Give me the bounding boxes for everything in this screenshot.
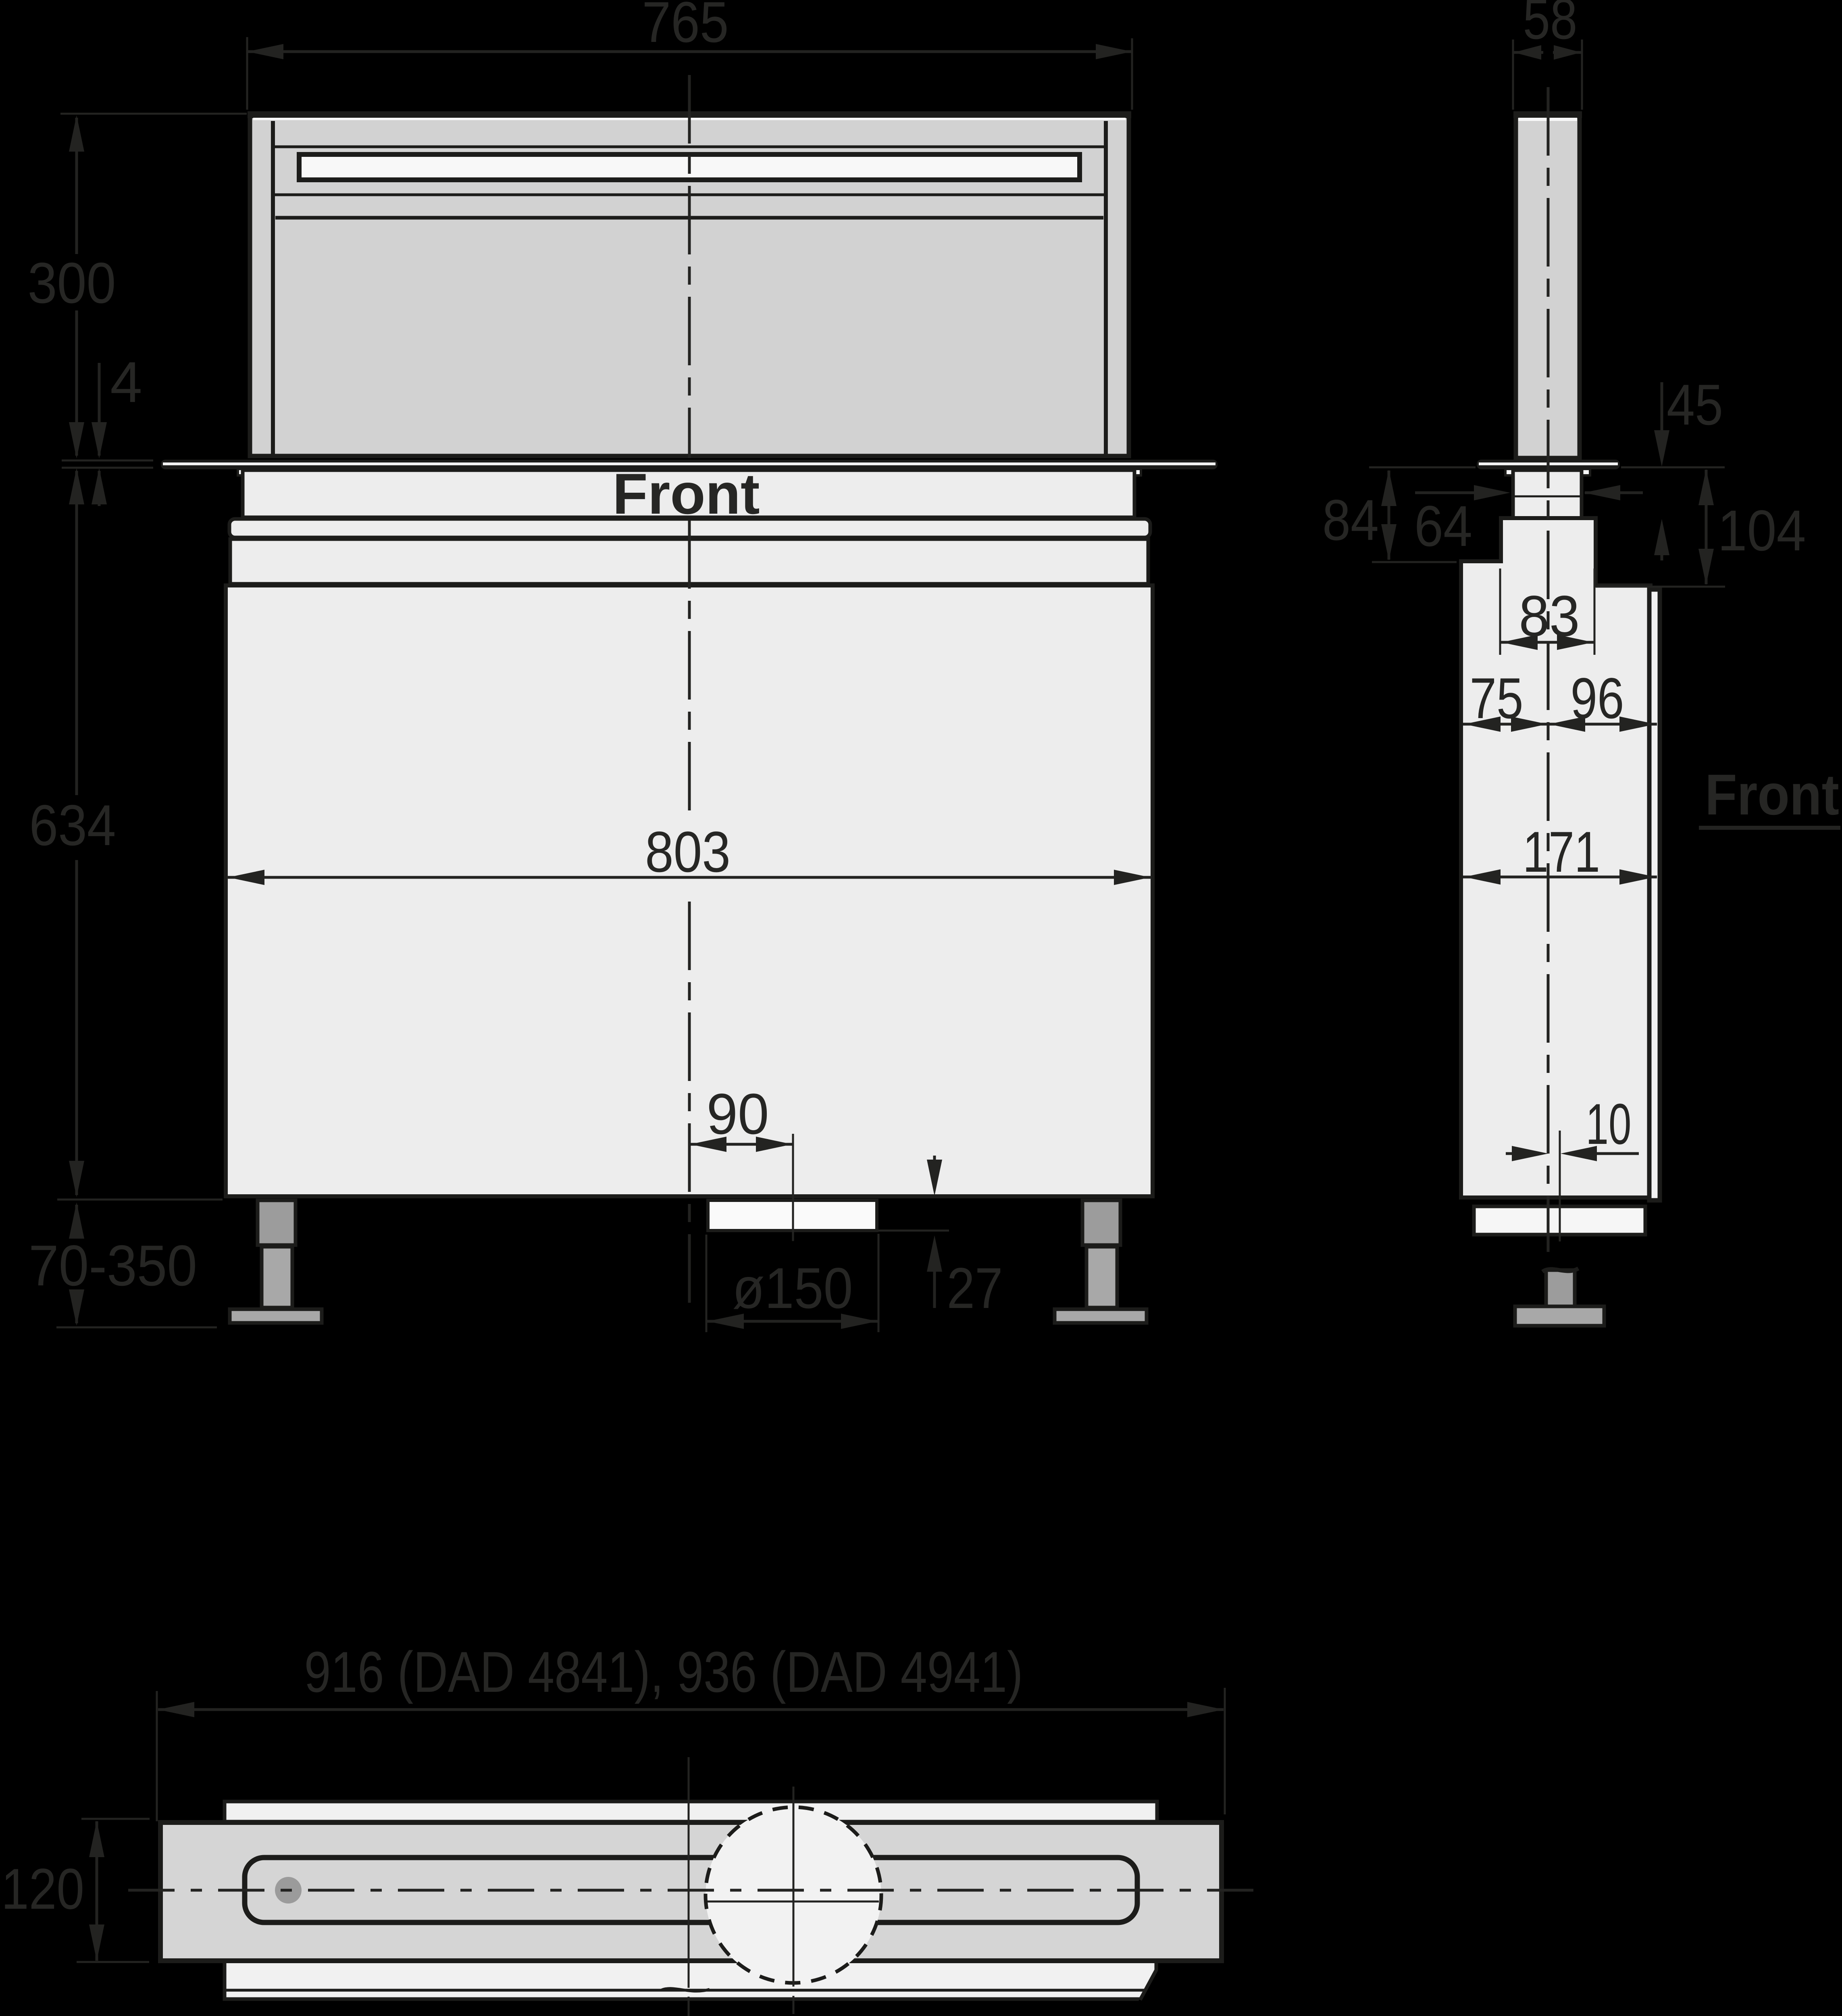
svg-text:70-350: 70-350 (29, 1234, 197, 1298)
svg-text:765: 765 (642, 0, 729, 54)
svg-text:300: 300 (28, 251, 116, 315)
svg-text:27: 27 (947, 1256, 1003, 1320)
svg-text:803: 803 (645, 820, 731, 884)
svg-text:64: 64 (1414, 494, 1472, 558)
svg-text:ø150: ø150 (733, 1256, 853, 1320)
svg-text:45: 45 (1667, 373, 1723, 437)
svg-text:Front: Front (1705, 763, 1839, 827)
svg-text:83: 83 (1519, 584, 1580, 648)
svg-text:90: 90 (707, 1082, 769, 1146)
svg-text:84: 84 (1322, 488, 1379, 552)
svg-text:96: 96 (1571, 666, 1624, 731)
svg-text:75: 75 (1470, 666, 1524, 731)
svg-text:58: 58 (1523, 0, 1578, 51)
svg-text:120: 120 (1, 1857, 84, 1921)
svg-text:916 (DAD 4841), 936 (DAD 4941): 916 (DAD 4841), 936 (DAD 4941) (304, 1640, 1023, 1704)
svg-text:10: 10 (1586, 1092, 1632, 1156)
svg-text:Front: Front (612, 462, 760, 526)
svg-text:634: 634 (29, 793, 116, 858)
svg-text:4: 4 (110, 350, 142, 414)
svg-text:171: 171 (1523, 820, 1600, 884)
svg-text:104: 104 (1718, 499, 1806, 563)
